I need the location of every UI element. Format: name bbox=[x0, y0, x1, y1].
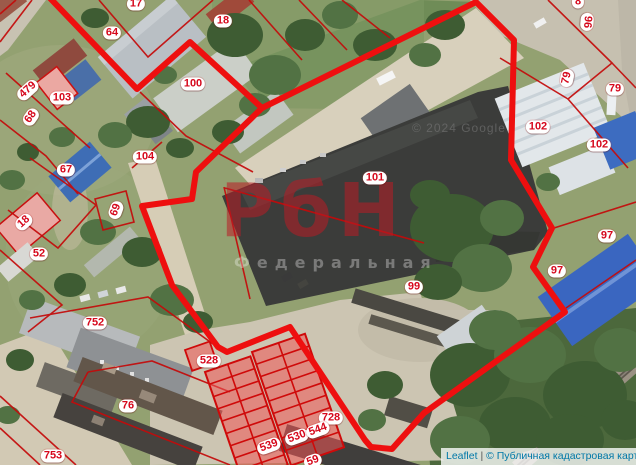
parcel-label[interactable]: 79 bbox=[606, 83, 624, 96]
attribution-separator: | bbox=[478, 450, 487, 462]
parcel-label[interactable]: 103 bbox=[50, 92, 74, 105]
parcel-label[interactable]: 104 bbox=[133, 151, 157, 164]
kadastr-link[interactable]: © Публичная кадастровая карта bbox=[486, 450, 636, 462]
parcel-label[interactable]: 102 bbox=[587, 139, 611, 152]
parcel-label[interactable]: 52 bbox=[30, 248, 48, 261]
leaflet-link[interactable]: Leaflet bbox=[446, 450, 478, 462]
parcel-label[interactable]: 102 bbox=[526, 121, 550, 134]
parcel-label[interactable]: 18 bbox=[214, 15, 232, 28]
parcel-label[interactable]: 64 bbox=[103, 27, 121, 40]
parcel-label[interactable]: 67 bbox=[57, 164, 75, 177]
parcel-label[interactable]: 752 bbox=[83, 317, 107, 330]
satellite-layer bbox=[0, 0, 636, 465]
parcel-label[interactable]: 97 bbox=[548, 265, 566, 278]
parcel-label[interactable]: 101 bbox=[363, 172, 387, 185]
parcel-label[interactable]: 76 bbox=[119, 400, 137, 413]
parcel-label[interactable]: 97 bbox=[598, 230, 616, 243]
parcel-label[interactable]: 528 bbox=[197, 355, 221, 368]
map-canvas[interactable]: РбН Федеральная © 2024 Google 1764188100… bbox=[0, 0, 636, 465]
parcel-label[interactable]: 17 bbox=[127, 0, 145, 11]
parcel-label[interactable]: 100 bbox=[181, 78, 205, 91]
parcel-label[interactable]: 753 bbox=[41, 450, 65, 463]
parcel-label[interactable]: 99 bbox=[405, 281, 423, 294]
attribution-bar: Leaflet | © Публичная кадастровая карта,… bbox=[441, 448, 636, 465]
